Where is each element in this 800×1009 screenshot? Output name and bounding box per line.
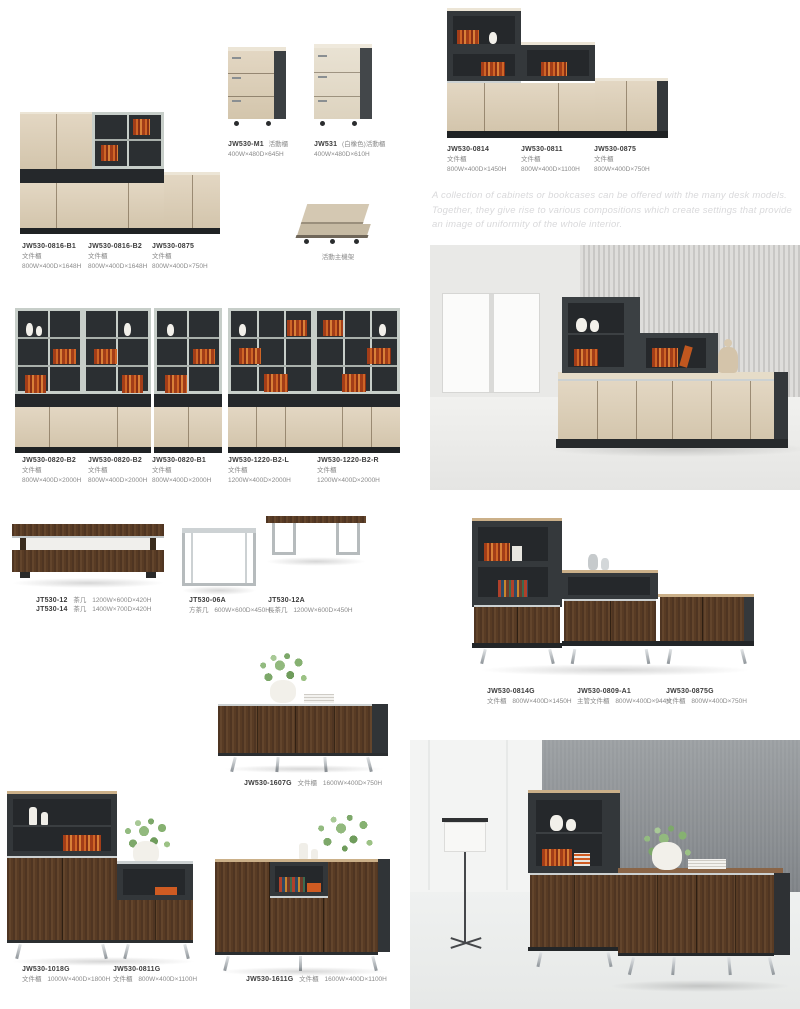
drawer-handle [232, 57, 241, 59]
product-type: 文件櫃 [447, 155, 506, 164]
label-0814: JW530-0814 文件櫃 800W×400D×1450H [447, 145, 506, 174]
books [574, 349, 598, 366]
white-book [512, 546, 522, 561]
product-code: JT530-06A [189, 596, 274, 606]
book [155, 887, 177, 895]
drawer-gap [314, 96, 360, 97]
vase [124, 323, 131, 336]
sideboard-side [774, 372, 788, 441]
chrome-foot [480, 649, 487, 664]
product-code: JW530-0820-B2 [88, 456, 147, 466]
product-dims: 800W×400D×1450H [447, 165, 506, 174]
books [457, 30, 479, 44]
label-0816-b1: JW530-0816-B1 文件櫃 800W×400D×1648H [22, 242, 81, 271]
cabinet-base [314, 447, 400, 453]
glass-doors [314, 308, 400, 394]
books [239, 348, 261, 364]
pedestal-side [360, 48, 372, 119]
product-dims: 1200W×400D×2000H [228, 476, 291, 485]
product-type: 文件櫃 [666, 698, 686, 705]
door-gap [558, 83, 559, 131]
window [442, 293, 540, 393]
shadow [480, 664, 750, 676]
product-type: 文件櫃 [22, 976, 42, 983]
open-slot [83, 394, 151, 407]
door-gap [188, 407, 189, 447]
cabinet-doors [154, 407, 222, 447]
product-code: JT530-14 [36, 606, 68, 613]
caster [330, 239, 335, 244]
cabinet-doors [660, 597, 744, 641]
caster [266, 121, 271, 126]
pedestal-side [274, 51, 286, 119]
open-box [270, 862, 328, 896]
product-type: 文件櫃 [487, 698, 507, 705]
product-code: JT530-12 [36, 597, 68, 604]
vase [566, 819, 576, 831]
cabinet-base [472, 643, 562, 648]
photo-room-scene-maple [430, 245, 800, 490]
cabinet-base [528, 947, 620, 951]
drawer-handle [232, 100, 241, 102]
label-0809-a1: JW530-0809-A1 主管文件櫃 800W×400D×944H [577, 687, 675, 707]
product-code: JW530-1611G [246, 976, 293, 983]
shadow [224, 765, 384, 773]
vase [29, 807, 37, 825]
magazines [688, 859, 726, 869]
door-gap [334, 706, 335, 753]
photo-room-scene-walnut [410, 740, 800, 1009]
cabinet-base [15, 447, 83, 453]
cabinet-base [595, 131, 668, 138]
label-cpu-holder: 活動主機架 [300, 253, 376, 262]
product-code: JW530-0820-B1 [152, 456, 211, 466]
intro-paragraph: A collection of cabinets or bookcases ca… [432, 189, 796, 233]
label-1607g: JW530-1607G 文件櫃 1600W×400D×750H [244, 779, 386, 789]
caster [354, 239, 359, 244]
product-code: JW530-1607G [244, 780, 292, 787]
wall-panel-line [428, 740, 430, 890]
books [101, 145, 118, 161]
drawer-gap [314, 72, 360, 73]
table-leg [182, 533, 185, 586]
table-loop-leg [272, 523, 296, 555]
chrome-foot [667, 649, 673, 664]
plant-vase [270, 680, 296, 703]
books [193, 349, 215, 364]
product-type: 文件櫃 [317, 466, 380, 475]
shadow [266, 557, 366, 566]
drawer-gap [228, 73, 274, 74]
label-0875g: JW530-0875G 文件櫃 800W×400D×750H [666, 687, 751, 707]
door-gap [696, 875, 697, 953]
door-gap [342, 407, 343, 447]
glass-shelf [157, 365, 219, 367]
label-jt530-14: JT530-14 茶几 1400W×700D×420H [36, 605, 155, 615]
books [287, 320, 307, 336]
product-dims: 600W×600D×450H [214, 607, 270, 614]
statue [718, 339, 738, 373]
cabinet-base [92, 228, 164, 234]
table-top [266, 516, 366, 523]
product-dims: 1200W×600D×420H [92, 597, 151, 604]
books [279, 877, 305, 892]
product-type: 文件櫃 [521, 155, 580, 164]
cabinet-base [154, 447, 222, 453]
books [94, 349, 117, 364]
plant-foliage [315, 813, 377, 861]
label-0820-b1: JW530-0820-B1 文件櫃 800W×400D×2000H [152, 456, 211, 485]
open-bookcase [528, 793, 620, 873]
door-gap [257, 706, 258, 753]
vase [379, 324, 386, 336]
open-box [521, 45, 595, 81]
drawer-handle [318, 76, 327, 78]
glass-shelf [95, 139, 161, 141]
box-shelf [568, 333, 624, 335]
cabinet-doors [92, 183, 164, 228]
sideboard-doors [618, 875, 774, 953]
sideboard-side [774, 873, 790, 955]
product-code: JW530-0811G [113, 965, 201, 975]
door-gap [517, 607, 518, 643]
box-shelf [13, 825, 111, 827]
open-box [447, 49, 521, 81]
product-type: 活動主機架 [300, 253, 376, 262]
photo-cabinet-group-0814 [445, 8, 670, 142]
product-code: JW530-0816-B2 [88, 242, 147, 252]
vase [41, 812, 48, 825]
drawer-handle [318, 100, 327, 102]
books [542, 849, 572, 866]
open-slot [15, 394, 83, 407]
vase [489, 32, 497, 44]
product-code: JW530-0820-B2 [22, 456, 81, 466]
label-jw531: JW531 (白橡色)活動櫃 400W×480D×610H [314, 140, 388, 160]
caster [352, 121, 357, 126]
product-dims: 800W×400D×2000H [88, 476, 147, 485]
label-jt530-12a: JT530-12A 長茶几 1200W×600D×450H [268, 596, 357, 616]
cabinet-base [7, 940, 117, 943]
cabinet-base [215, 952, 378, 955]
book [307, 883, 321, 892]
drawer-gap [228, 96, 274, 97]
catalog-page: A collection of cabinets or bookcases ca… [0, 0, 800, 1009]
product-dims: 1200W×400D×2000H [317, 476, 380, 485]
door-gap [256, 407, 257, 447]
photo-cabinet-group-0814g [470, 518, 762, 686]
glass-doors [83, 308, 151, 394]
table-loop-leg [336, 523, 360, 555]
product-dims: 800W×400D×944H [615, 698, 671, 705]
books [342, 374, 366, 392]
open-slot [20, 169, 92, 183]
cabinet-base [228, 447, 314, 453]
photo-long-table-jt530-12a [266, 508, 366, 566]
cabinet-base [83, 447, 151, 453]
label-1611g: JW530-1611G 文件櫃 1600W×400D×1100H [246, 975, 391, 985]
product-code: JW530-0809-A1 [577, 687, 675, 697]
sideboard-doors [558, 381, 786, 441]
product-code: JW530-0814G [487, 687, 576, 697]
door-gap [484, 83, 485, 131]
product-dims: 400W×480D×645H [228, 150, 291, 159]
photo-cabinet-group-0816 [15, 112, 220, 238]
product-dims: 800W×400D×1100H [138, 976, 197, 983]
door-gap [295, 706, 296, 753]
product-type: 文件櫃 [299, 976, 319, 983]
product-dims: 1400W×700D×420H [92, 606, 151, 613]
label-1220-r: JW530-1220-B2-R 文件櫃 1200W×400D×2000H [317, 456, 380, 485]
open-box [117, 864, 193, 900]
cabinet-doors [474, 607, 560, 643]
caster [234, 121, 239, 126]
product-dims: 1600W×400D×1100H [324, 976, 386, 983]
glass-shelf [86, 365, 148, 367]
cpu-holder-panel [301, 204, 369, 224]
product-type: 活動櫃 [269, 141, 289, 148]
label-0814g: JW530-0814G 文件櫃 800W×400D×1450H [487, 687, 576, 707]
label-1220-l: JW530-1220-B2-L 文件櫃 1200W×400D×2000H [228, 456, 291, 485]
product-dims: 1600W×400D×750H [323, 780, 382, 787]
label-0816-b2: JW530-0816-B2 文件櫃 800W×400D×1648H [88, 242, 147, 271]
door-gap [636, 381, 637, 441]
trim [270, 896, 328, 898]
product-code: JW530-0816-B1 [22, 242, 81, 252]
books [133, 119, 150, 135]
product-type: 主管文件櫃 [577, 698, 610, 705]
cabinet-doors [314, 407, 400, 447]
product-type: 文件櫃 [22, 252, 81, 261]
box-interior [568, 577, 650, 595]
label-0875b: JW530-0875 文件櫃 800W×400D×750H [594, 145, 650, 174]
shadow [182, 586, 256, 595]
cabinet-doors [564, 601, 656, 641]
label-0820-b2-a: JW530-0820-B2 文件櫃 800W×400D×2000H [22, 456, 81, 485]
label-0811g: JW530-0811G 文件櫃 800W×400D×1100H [113, 965, 201, 985]
product-type: 文件櫃 [88, 252, 147, 261]
cabinet-doors [15, 407, 83, 447]
books [122, 375, 143, 393]
glass-shelf [317, 337, 397, 339]
shadow [12, 578, 164, 588]
label-0811: JW530-0811 文件櫃 800W×400D×1100H [521, 145, 580, 174]
open-box [562, 573, 658, 599]
product-type: (白橡色)活動櫃 [342, 141, 385, 148]
cabinet-doors [117, 900, 193, 940]
product-code: JW530-1220-B2-L [228, 456, 291, 466]
door-gap [56, 114, 57, 169]
product-code: JW530-0875 [152, 242, 208, 252]
open-slot [314, 394, 400, 407]
cabinet-base [658, 641, 754, 646]
vase [590, 320, 599, 332]
cpu-holder-underside [296, 235, 369, 238]
cabinet-base [164, 228, 220, 234]
cabinet-side [657, 81, 668, 131]
window-mullion [489, 294, 494, 392]
glass-shelf [157, 337, 219, 339]
sideboard-doors [218, 706, 372, 753]
books [367, 348, 391, 364]
door-gap [192, 175, 193, 228]
glass-mullion [187, 311, 189, 391]
product-dims: 400W×480D×610H [314, 150, 388, 159]
table-top [12, 524, 164, 536]
cabinet-side [378, 859, 390, 952]
product-code: JW530-0875G [666, 687, 751, 697]
books [498, 580, 528, 597]
glass-shelf [18, 365, 80, 367]
vase [167, 324, 174, 336]
product-type: 文件櫃 [152, 466, 211, 475]
open-slot [228, 394, 314, 407]
cabinet-doors [595, 81, 657, 131]
sideboard-base [556, 439, 788, 448]
glass-shelf [18, 337, 80, 339]
books [484, 543, 510, 561]
door-gap [626, 81, 627, 131]
product-type: 文件櫃 [113, 976, 133, 983]
glass-doors [154, 308, 222, 394]
product-code: JW530-0814 [447, 145, 506, 155]
product-type: 文件櫃 [594, 155, 650, 164]
open-box-mid [640, 333, 718, 373]
plant-vase [652, 842, 682, 870]
table-leg-back [191, 533, 193, 583]
lamp-shade [444, 822, 486, 852]
cabinet-base [20, 228, 92, 234]
cabinet-doors [164, 175, 220, 228]
caster [320, 121, 325, 126]
door-gap [117, 407, 118, 447]
drawer-handle [318, 55, 327, 57]
door-gap [711, 381, 712, 441]
product-type: 方茶几 [189, 607, 209, 614]
books [264, 374, 288, 392]
product-type: 文件櫃 [228, 466, 291, 475]
statue-head [724, 339, 732, 347]
product-type: 長茶几 [268, 607, 288, 614]
product-code: JT530-12A [268, 596, 357, 606]
chrome-foot [571, 649, 577, 664]
product-code: JW530-1220-B2-R [317, 456, 380, 466]
table-open-shelf [20, 538, 156, 550]
door-gap [574, 875, 575, 947]
product-type: 茶几 [73, 606, 86, 613]
photo-pedestal-jw531 [314, 44, 372, 127]
pedestal-front [314, 48, 360, 119]
door-gap [49, 407, 50, 447]
door-gap [610, 601, 611, 641]
photo-pedestal-m1 [228, 47, 286, 127]
photo-square-table-jt530-06a [182, 528, 256, 592]
photo-cpu-holder [296, 202, 376, 246]
product-code: JW530-M1 [228, 141, 264, 148]
glass-shelf [231, 365, 311, 367]
cabinet-base [562, 641, 658, 646]
glass-doors [15, 308, 83, 394]
product-dims: 800W×400D×1100H [521, 165, 580, 174]
table-body [12, 550, 164, 572]
label-0820-b2-b: JW530-0820-B2 文件櫃 800W×400D×2000H [88, 456, 147, 485]
door-gap [597, 381, 598, 441]
door-gap [155, 900, 156, 940]
glass-shelf [231, 337, 311, 339]
cabinet-doors [20, 183, 92, 228]
glass-doors [228, 308, 314, 394]
sideboard-base [218, 753, 388, 756]
open-slot [154, 394, 222, 407]
product-code: JW530-0811 [521, 145, 580, 155]
table-leg [253, 533, 256, 586]
product-dims: 1200W×600D×450H [293, 607, 352, 614]
open-bookcase [7, 794, 117, 856]
cpu-holder-base [297, 224, 371, 235]
glass-shelf [86, 337, 148, 339]
pedestal-front [228, 51, 274, 119]
cabinet-doors [530, 875, 618, 947]
product-dims: 800W×400D×1450H [512, 698, 571, 705]
product-dims: 800W×400D×1648H [22, 262, 81, 271]
book-stack [574, 853, 590, 866]
label-1018g: JW530-1018G 文件櫃 1000W×400D×1800H [22, 965, 114, 985]
vase [550, 815, 563, 831]
books [63, 835, 101, 851]
sideboard-top [558, 372, 786, 379]
product-dims: 800W×400D×1648H [88, 262, 147, 271]
cabinet-doors [83, 407, 151, 447]
label-0875: JW530-0875 文件櫃 800W×400D×750H [152, 242, 208, 271]
open-slot [92, 169, 164, 183]
wall-panel-line [506, 740, 508, 890]
label-jt530-06a: JT530-06A 方茶几 600W×600D×450H [189, 596, 274, 616]
cabinet-doors [20, 112, 92, 169]
product-type: 茶几 [73, 597, 86, 604]
photo-bookcase-group-1220 [228, 308, 400, 453]
drawer-handle [232, 77, 241, 79]
label-m1: JW530-M1 活動櫃 400W×480D×645H [228, 140, 291, 160]
product-code: JW531 [314, 141, 337, 148]
product-dims: 800W×400D×750H [594, 165, 650, 174]
shadow [610, 980, 790, 992]
table-leg-back [245, 533, 247, 583]
cabinet-side [744, 597, 754, 641]
door-gap [735, 875, 736, 953]
product-dims: 800W×400D×2000H [22, 476, 81, 485]
books [25, 375, 46, 393]
door-gap [128, 183, 129, 228]
books [323, 320, 343, 336]
books [541, 62, 567, 76]
books [53, 349, 76, 364]
product-type: 文件櫃 [88, 466, 147, 475]
product-type: 文件櫃 [298, 780, 318, 787]
door-gap [657, 875, 658, 953]
product-dims: 800W×400D×2000H [152, 476, 211, 485]
door-gap [56, 183, 57, 228]
vase [36, 326, 42, 336]
sideboard-side [372, 704, 388, 753]
door-gap [285, 407, 286, 447]
cabinet-doors [521, 83, 595, 131]
lamp-pole [464, 852, 466, 944]
books [165, 375, 187, 393]
books [652, 348, 678, 367]
product-type: 文件櫃 [22, 466, 81, 475]
glass-mullion [48, 311, 50, 391]
chrome-foot [740, 649, 747, 664]
